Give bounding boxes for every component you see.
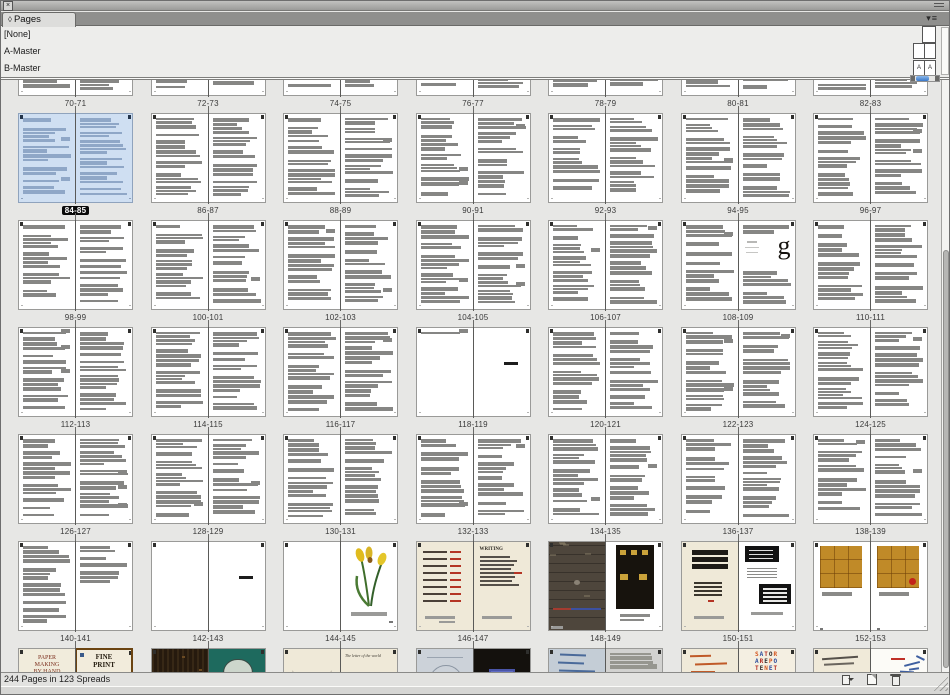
spread-140-141[interactable]: 140-141 — [18, 541, 133, 645]
page-right[interactable]: g — [738, 220, 796, 310]
edit-page-size-icon[interactable] — [841, 674, 854, 685]
spread-row6-col3[interactable] — [416, 648, 531, 672]
thumb-mark — [288, 289, 331, 291]
page-right[interactable] — [473, 113, 531, 203]
thumb-mark — [818, 507, 860, 510]
master-row-none[interactable]: [None] — [0, 26, 950, 43]
thumb-mark — [213, 478, 239, 482]
page-right[interactable] — [605, 648, 663, 672]
page-left[interactable] — [681, 80, 739, 96]
spread-100-101[interactable]: 100-101 — [151, 220, 266, 324]
page-right[interactable] — [738, 327, 796, 417]
page-left[interactable] — [151, 113, 209, 203]
thumb-mark — [747, 577, 777, 578]
spread-96-97[interactable]: 96-97 — [813, 113, 928, 217]
spine-tick — [340, 641, 341, 648]
page-right[interactable] — [738, 113, 796, 203]
spread-132-133[interactable]: 132-133 — [416, 434, 531, 538]
thumb-mark — [553, 474, 578, 477]
thumb-mark — [686, 332, 713, 334]
page-left[interactable] — [813, 327, 871, 417]
scrollbar-thumb[interactable] — [943, 250, 949, 668]
spread-row6-col6[interactable] — [813, 648, 928, 672]
page-left[interactable] — [18, 327, 76, 417]
page-left[interactable] — [548, 220, 606, 310]
spread-icon[interactable] — [913, 43, 936, 59]
spread-86-87[interactable]: 86-87 — [151, 113, 266, 217]
thumb-mark — [571, 608, 601, 610]
page-left[interactable] — [681, 220, 739, 310]
spread-108-109[interactable]: g108-109 — [681, 220, 796, 324]
thumb-mark — [527, 305, 529, 306]
page-left[interactable] — [681, 113, 739, 203]
thumb-mark — [213, 131, 249, 134]
spread-138-139[interactable]: 138-139 — [813, 434, 928, 538]
page-left[interactable] — [548, 80, 606, 96]
thumb-mark — [80, 500, 109, 503]
page-right[interactable] — [605, 541, 663, 631]
thumb-mark — [875, 163, 921, 165]
spread-144-145[interactable]: 144-145 — [283, 541, 398, 645]
page-left[interactable] — [813, 648, 871, 672]
spread-130-131[interactable]: 130-131 — [283, 434, 398, 538]
thumb-mark — [459, 278, 468, 282]
thumb-mark — [648, 464, 657, 468]
thumb-mark — [879, 592, 909, 596]
thumb-mark — [610, 184, 636, 187]
thumb-mark — [129, 412, 131, 413]
page-right[interactable]: SATORAREPOTENET — [738, 648, 796, 672]
thumb-mark — [516, 264, 525, 268]
spread-118-119[interactable]: 118-119 — [416, 327, 531, 431]
thumb-mark — [482, 616, 512, 619]
thumb-mark — [686, 340, 723, 344]
page-right[interactable] — [605, 113, 663, 203]
create-new-page-icon[interactable] — [865, 674, 878, 685]
thumb-mark — [23, 456, 52, 459]
thumb-mark — [743, 371, 781, 374]
page-left[interactable] — [18, 541, 76, 631]
thumb-mark — [156, 343, 192, 345]
page-left[interactable] — [151, 434, 209, 524]
page-right[interactable] — [473, 220, 531, 310]
page-left[interactable] — [416, 220, 474, 310]
page-right[interactable] — [75, 220, 133, 310]
thumb-mark — [383, 138, 392, 142]
scroll-arrow-left[interactable] — [911, 76, 915, 81]
thumb-mark — [421, 246, 461, 249]
page-right[interactable] — [208, 80, 266, 96]
thumb-mark — [686, 462, 729, 465]
page-right[interactable] — [340, 113, 398, 203]
page-right[interactable] — [473, 434, 531, 524]
thumb-mark — [553, 271, 592, 274]
spine-tick — [605, 427, 606, 434]
thumb-mark — [80, 546, 110, 549]
thumb-mark — [553, 377, 599, 381]
thumb-mark — [345, 131, 375, 133]
scroll-arrow-right[interactable] — [935, 76, 939, 81]
spread-128-129[interactable]: 128-129 — [151, 434, 266, 538]
page-left[interactable] — [681, 541, 739, 631]
thumb-mark — [421, 292, 445, 295]
thumb-mark — [21, 412, 23, 413]
page-left[interactable] — [151, 80, 209, 96]
spine-tick — [605, 320, 606, 327]
page-right[interactable] — [605, 220, 663, 310]
spread-94-95[interactable]: 94-95 — [681, 113, 796, 217]
page-right[interactable] — [75, 80, 133, 96]
masters-scrollbar[interactable] — [941, 27, 949, 75]
page-right[interactable] — [208, 541, 266, 631]
spread-row6-col1[interactable] — [151, 648, 266, 672]
spread-142-143[interactable]: 142-143 — [151, 541, 266, 645]
page-left[interactable] — [283, 220, 341, 310]
page-left[interactable]: PAPERMAKINGBY HANDA BOOK OF — [18, 648, 76, 672]
thumb-mark — [345, 402, 377, 406]
page-right[interactable] — [738, 541, 796, 631]
page-right[interactable] — [870, 648, 928, 672]
page-right[interactable] — [870, 220, 928, 310]
thumb-mark — [239, 576, 253, 579]
thumb-mark — [553, 358, 597, 361]
thumb-mark — [553, 382, 592, 385]
page-left[interactable] — [151, 220, 209, 310]
thumb-mark — [686, 457, 715, 461]
page-right[interactable] — [75, 113, 133, 203]
page-left[interactable] — [681, 434, 739, 524]
thumb-mark — [80, 158, 122, 160]
thumb-mark — [818, 335, 851, 337]
spread-148-149[interactable]: 148-149 — [548, 541, 663, 645]
thumb-mark — [288, 376, 330, 380]
spread-row6-col2[interactable]: The letter of the worldHEGEL — [283, 648, 398, 672]
spread-114-115[interactable]: 114-115 — [151, 327, 266, 431]
spread-112-113[interactable]: 112-113 — [18, 327, 133, 431]
thumb-mark — [429, 665, 463, 672]
thumb-mark — [345, 283, 375, 286]
thumb-mark — [23, 588, 60, 592]
spread-92-93[interactable]: 92-93 — [548, 113, 663, 217]
thumb-mark — [610, 300, 657, 304]
thumb-mark — [686, 166, 731, 170]
spread-126-127[interactable]: 126-127 — [18, 434, 133, 538]
page-right[interactable] — [473, 648, 531, 672]
thumb-mark — [213, 396, 237, 398]
spread-124-125[interactable]: 124-125 — [813, 327, 928, 431]
thumb-mark — [924, 91, 926, 92]
page-right[interactable] — [870, 541, 928, 631]
page-left[interactable] — [681, 327, 739, 417]
spread-88-89[interactable]: 88-89 — [283, 113, 398, 217]
spread-spine — [340, 541, 341, 632]
thumb-mark — [478, 80, 508, 81]
page-left[interactable] — [416, 80, 474, 96]
thumb-mark — [345, 159, 383, 162]
spread-row6-col4[interactable] — [548, 648, 663, 672]
thumb-mark — [553, 395, 579, 399]
thumb-mark — [80, 293, 108, 296]
close-icon[interactable]: × — [3, 1, 13, 11]
thumb-mark — [686, 439, 714, 442]
thumb-mark — [23, 471, 70, 475]
thumb-mark — [213, 403, 254, 405]
masters-horizontal-scrollbar[interactable] — [910, 75, 940, 82]
thumb-mark — [875, 160, 911, 162]
thumb-mark — [610, 234, 654, 238]
thumb-mark — [288, 356, 334, 359]
page-left[interactable] — [681, 648, 739, 672]
page-right[interactable] — [340, 327, 398, 417]
spread-150-151[interactable]: 150-151 — [681, 541, 796, 645]
spread-row6-col5[interactable]: SATORAREPOTENET — [681, 648, 796, 672]
panel-tab-row — [0, 12, 950, 26]
spine-tick — [870, 213, 871, 220]
thumb-mark — [686, 404, 722, 406]
page-left[interactable] — [283, 434, 341, 524]
page-left[interactable] — [416, 327, 474, 417]
thumb-mark — [818, 391, 851, 393]
page-right[interactable] — [208, 113, 266, 203]
page-left[interactable] — [151, 541, 209, 631]
thumb-mark — [213, 332, 257, 336]
page-left[interactable] — [416, 434, 474, 524]
thumb-mark — [288, 515, 323, 517]
thumb-mark — [686, 292, 729, 296]
thumb-mark — [553, 80, 597, 82]
page-left[interactable] — [416, 541, 474, 631]
thumb-mark — [743, 332, 780, 335]
page-right[interactable] — [605, 327, 663, 417]
page-left[interactable] — [151, 648, 209, 672]
thumb-mark — [61, 177, 70, 181]
thumb-mark — [743, 164, 767, 168]
thumb-mark — [686, 279, 719, 283]
spread-90-91[interactable]: 90-91 — [416, 113, 531, 217]
thumb-mark — [683, 115, 686, 119]
spread-110-111[interactable]: 110-111 — [813, 220, 928, 324]
thumb-mark — [288, 268, 332, 271]
pages-scrollbar[interactable] — [941, 80, 950, 672]
page-left[interactable] — [18, 80, 76, 96]
panel-menu-icon[interactable]: ▾≡ — [926, 13, 938, 23]
page-right[interactable]: WRITING — [473, 541, 531, 631]
thumb-mark — [21, 626, 23, 627]
thumb-mark — [80, 230, 111, 234]
thumb-mark — [23, 252, 49, 256]
page-right[interactable] — [605, 80, 663, 96]
delete-pages-icon[interactable] — [889, 674, 902, 685]
page-right[interactable] — [340, 541, 398, 631]
page-right[interactable] — [738, 80, 796, 96]
thumb-mark — [478, 502, 506, 505]
thumb-mark — [129, 519, 131, 520]
thumb-mark — [553, 374, 597, 376]
spread-106-107[interactable]: 106-107 — [548, 220, 663, 324]
thumb-mark — [551, 91, 553, 92]
page-right[interactable] — [340, 220, 398, 310]
spread-84-85[interactable]: 84-85 — [18, 113, 133, 217]
thumb-mark — [875, 169, 922, 173]
master-row-b-master[interactable]: B-Master AA — [0, 60, 950, 77]
thumb-mark — [743, 153, 784, 157]
thumb-mark — [213, 143, 246, 146]
thumb-mark — [288, 477, 326, 479]
thumb-mark — [199, 669, 202, 671]
thumb-mark — [23, 451, 60, 455]
thumb-mark — [551, 626, 553, 627]
spine-tick — [473, 106, 474, 113]
page-left[interactable] — [151, 327, 209, 417]
thumb-mark — [818, 267, 854, 271]
page-right[interactable] — [870, 113, 928, 203]
thumb-mark — [288, 150, 334, 154]
thumb-mark — [875, 439, 900, 442]
thumb-mark — [694, 594, 722, 596]
thumb-mark — [686, 270, 734, 273]
page-right[interactable] — [208, 327, 266, 417]
thumb-mark — [610, 388, 650, 391]
page-left[interactable] — [416, 113, 474, 203]
thumb-mark — [610, 446, 650, 450]
page-left[interactable] — [813, 113, 871, 203]
page-left[interactable] — [548, 434, 606, 524]
thumb-mark — [345, 188, 370, 190]
page-left[interactable] — [813, 220, 871, 310]
page-left[interactable] — [283, 327, 341, 417]
thumb-mark — [23, 293, 56, 297]
thumb-mark — [23, 615, 66, 618]
scrollbar-thumb[interactable] — [916, 76, 929, 81]
thumb-mark — [156, 190, 196, 192]
page-left[interactable] — [416, 648, 474, 672]
page-left[interactable] — [813, 80, 871, 96]
thumb-mark — [686, 124, 710, 126]
thumb-mark — [763, 592, 787, 594]
spread-116-117[interactable]: 116-117 — [283, 327, 398, 431]
thumb-mark — [129, 305, 131, 306]
page-left[interactable] — [548, 648, 606, 672]
page-left[interactable] — [283, 80, 341, 96]
spread-134-135[interactable]: 134-135 — [548, 434, 663, 538]
page-right[interactable] — [75, 434, 133, 524]
spread-146-147[interactable]: WRITING146-147 — [416, 541, 531, 645]
page-left[interactable] — [548, 541, 606, 631]
page-right[interactable] — [75, 327, 133, 417]
thumb-mark — [875, 485, 920, 488]
thumb-mark — [553, 362, 600, 365]
thumb-mark — [875, 353, 917, 357]
page-right[interactable]: FINEPRINTTHE REVIEW — [75, 648, 133, 672]
thumb-mark — [421, 332, 460, 334]
spread-spine — [870, 113, 871, 204]
thumb-mark — [213, 505, 243, 509]
thumb-mark — [749, 550, 773, 551]
page-right[interactable] — [340, 80, 398, 96]
spread-122-123[interactable]: 122-123 — [681, 327, 796, 431]
page-right[interactable] — [340, 434, 398, 524]
thumb-mark — [686, 175, 714, 178]
thumb-mark — [80, 126, 116, 128]
spread-row6-col0[interactable]: PAPERMAKINGBY HANDA BOOK OFFINEPRINTTHE … — [18, 648, 133, 672]
thumb-mark — [553, 275, 583, 278]
page-left[interactable] — [548, 113, 606, 203]
spread-104-105[interactable]: 104-105 — [416, 220, 531, 324]
master-row-a-master[interactable]: A-Master — [0, 43, 950, 60]
page-left[interactable] — [813, 541, 871, 631]
thumb-mark — [478, 439, 521, 443]
thumb-mark — [421, 489, 464, 493]
spread-136-137[interactable]: 136-137 — [681, 434, 796, 538]
page-left[interactable] — [283, 113, 341, 203]
thumb-mark — [427, 657, 463, 658]
page-right[interactable]: The letter of the worldHEGEL — [340, 648, 398, 672]
thumb-mark — [421, 467, 459, 471]
spread-152-153[interactable]: 152-153 — [813, 541, 928, 645]
spread-98-99[interactable]: 98-99 — [18, 220, 133, 324]
thumb-mark — [792, 305, 794, 306]
page-right[interactable] — [473, 80, 531, 96]
thumb-mark — [288, 242, 325, 245]
thumb-mark — [818, 501, 842, 504]
page-left[interactable] — [548, 327, 606, 417]
page-right[interactable] — [870, 434, 928, 524]
thumb-mark — [686, 371, 726, 374]
thumb-mark — [694, 616, 724, 619]
page-right[interactable] — [738, 434, 796, 524]
panel-titlebar[interactable]: × — [0, 0, 950, 11]
spread-spine — [473, 113, 474, 204]
thumb-mark — [213, 500, 259, 504]
page-right[interactable] — [75, 541, 133, 631]
page-left[interactable] — [283, 541, 341, 631]
thumb-mark — [746, 252, 758, 253]
thumb-mark — [288, 254, 335, 258]
thumb-mark — [156, 495, 201, 499]
spread-120-121[interactable]: 120-121 — [548, 327, 663, 431]
page-right[interactable] — [605, 434, 663, 524]
page-left[interactable] — [18, 113, 76, 203]
thumb-mark — [553, 508, 580, 512]
spread-spine — [738, 541, 739, 632]
thumb-mark — [23, 507, 50, 509]
thumb-mark — [345, 168, 370, 170]
masters-section: [None] A-Master B-Master AA — [0, 26, 950, 77]
thumb-mark — [156, 359, 199, 362]
spread-spine — [340, 327, 341, 418]
page-right[interactable] — [473, 327, 531, 417]
page-left[interactable] — [18, 434, 76, 524]
page-left[interactable] — [813, 434, 871, 524]
thumb-mark — [478, 148, 516, 150]
thumb-mark — [591, 497, 600, 501]
page-right[interactable] — [208, 220, 266, 310]
spread-icon[interactable]: AA — [913, 60, 936, 76]
spread-spine — [208, 434, 209, 525]
page-right[interactable] — [208, 648, 266, 672]
page-right[interactable] — [870, 80, 928, 96]
thumb-mark — [553, 354, 593, 357]
page-right[interactable] — [870, 327, 928, 417]
page-right[interactable] — [208, 434, 266, 524]
spine-tick — [605, 534, 606, 541]
page-left[interactable] — [18, 220, 76, 310]
thumb-mark — [610, 486, 638, 490]
spread-102-103[interactable]: 102-103 — [283, 220, 398, 324]
tab-pages[interactable]: ◊Pages — [2, 12, 76, 27]
page-left[interactable] — [283, 648, 341, 672]
thumb-mark — [156, 277, 203, 279]
